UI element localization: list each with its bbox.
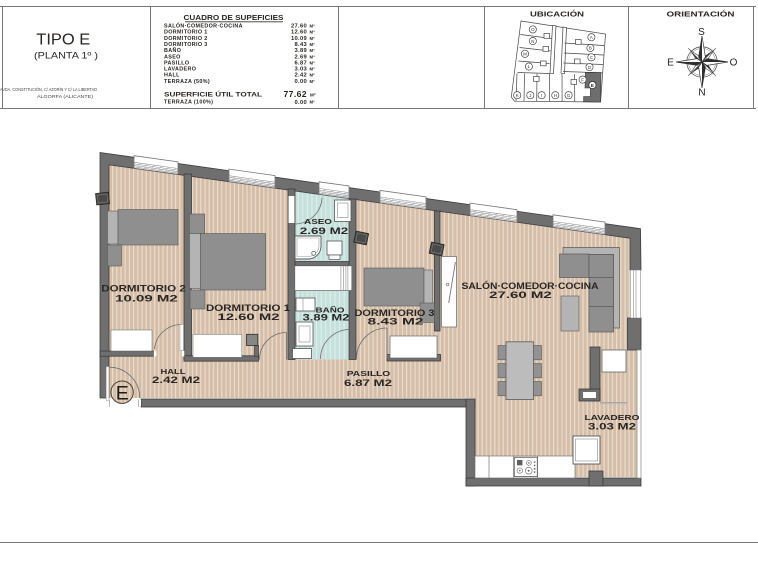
svg-text:SUPERFICIE ÚTIL TOTAL: SUPERFICIE ÚTIL TOTAL: [164, 90, 262, 99]
svg-text:6.87 M2: 6.87 M2: [344, 378, 392, 388]
svg-text:I: I: [541, 93, 542, 98]
svg-text:3.03 M2: 3.03 M2: [588, 422, 636, 432]
svg-text:SALÓN·COMEDOR·COCINA: SALÓN·COMEDOR·COCINA: [164, 22, 243, 30]
svg-text:PASILLO: PASILLO: [164, 60, 189, 66]
svg-text:D: D: [588, 65, 591, 70]
svg-text:K: K: [516, 93, 519, 98]
svg-text:M²: M²: [310, 30, 316, 35]
svg-text:TERRAZA (100%): TERRAZA (100%): [164, 100, 213, 106]
svg-text:DORMITORIO 1: DORMITORIO 1: [164, 30, 208, 36]
svg-text:M²: M²: [310, 24, 316, 29]
svg-text:LAVADERO: LAVADERO: [164, 67, 196, 73]
svg-text:S: S: [698, 27, 705, 38]
svg-text:2.42 M2: 2.42 M2: [152, 375, 200, 385]
svg-text:M²: M²: [310, 73, 316, 78]
svg-text:2.69 M2: 2.69 M2: [300, 226, 348, 236]
svg-text:0.00: 0.00: [295, 100, 307, 106]
svg-text:ORIENTACIÓN: ORIENTACIÓN: [667, 10, 735, 19]
svg-text:O: O: [730, 58, 738, 69]
svg-text:TIPO E: TIPO E: [36, 32, 90, 49]
svg-text:DORMITORIO 2: DORMITORIO 2: [101, 284, 186, 294]
svg-text:HALL: HALL: [164, 73, 180, 79]
svg-text:ASEO: ASEO: [164, 54, 181, 60]
svg-text:J: J: [529, 93, 531, 98]
svg-text:TERRAZA (50%): TERRAZA (50%): [164, 79, 210, 85]
svg-text:E: E: [667, 58, 674, 69]
svg-text:3.89 M2: 3.89 M2: [303, 312, 350, 322]
svg-text:10.09: 10.09: [291, 36, 307, 42]
svg-text:12.60 M2: 12.60 M2: [218, 312, 280, 322]
svg-text:G: G: [567, 93, 571, 98]
svg-text:M²: M²: [310, 36, 316, 41]
svg-text:0.00: 0.00: [295, 79, 307, 85]
svg-text:M²: M²: [310, 48, 316, 53]
svg-text:O: O: [531, 27, 535, 32]
svg-text:12.60: 12.60: [291, 30, 307, 36]
svg-text:8.43: 8.43: [295, 42, 308, 48]
svg-text:M²: M²: [310, 67, 316, 72]
svg-text:DORMITORIO 2: DORMITORIO 2: [164, 36, 208, 42]
svg-text:10.09 M2: 10.09 M2: [115, 294, 178, 304]
svg-text:E: E: [116, 382, 129, 404]
svg-text:H: H: [554, 93, 557, 98]
svg-text:AVDA. CONSTITUCIÓN, C/ AZORÍN: AVDA. CONSTITUCIÓN, C/ AZORÍN Y C/ LA LI…: [0, 86, 98, 92]
svg-text:M: M: [523, 52, 527, 57]
svg-text:27.60 M2: 27.60 M2: [489, 290, 552, 300]
svg-text:BAÑO: BAÑO: [164, 47, 181, 54]
svg-text:ALGORFA (ALICANTE): ALGORFA (ALICANTE): [37, 94, 94, 99]
svg-text:E: E: [591, 83, 594, 88]
svg-text:C: C: [590, 55, 593, 60]
svg-text:UBICACIÓN: UBICACIÓN: [530, 10, 584, 19]
svg-text:3.89: 3.89: [295, 48, 308, 54]
svg-text:B: B: [589, 46, 592, 51]
svg-text:77.62: 77.62: [283, 89, 307, 99]
svg-text:27.60: 27.60: [291, 24, 307, 30]
svg-text:6.87: 6.87: [295, 60, 307, 66]
svg-text:(PLANTA 1º ): (PLANTA 1º ): [34, 51, 98, 61]
svg-text:DORMITORIO 3: DORMITORIO 3: [164, 42, 208, 48]
svg-text:8.43 M2: 8.43 M2: [368, 316, 424, 326]
svg-text:2.42: 2.42: [295, 73, 307, 79]
svg-text:M²: M²: [310, 60, 316, 65]
svg-text:M²: M²: [310, 79, 316, 84]
svg-text:M²: M²: [310, 54, 316, 59]
svg-text:CUADRO DE SUPEFICIES: CUADRO DE SUPEFICIES: [184, 13, 284, 22]
svg-text:A: A: [590, 35, 593, 40]
svg-text:N: N: [698, 88, 705, 99]
svg-text:M²: M²: [310, 42, 316, 47]
svg-text:F: F: [581, 77, 584, 82]
svg-text:2.69: 2.69: [295, 54, 308, 60]
svg-text:3.03: 3.03: [295, 67, 308, 73]
svg-text:M²: M²: [310, 100, 316, 105]
svg-text:N: N: [531, 39, 534, 44]
svg-text:M²: M²: [310, 93, 316, 98]
